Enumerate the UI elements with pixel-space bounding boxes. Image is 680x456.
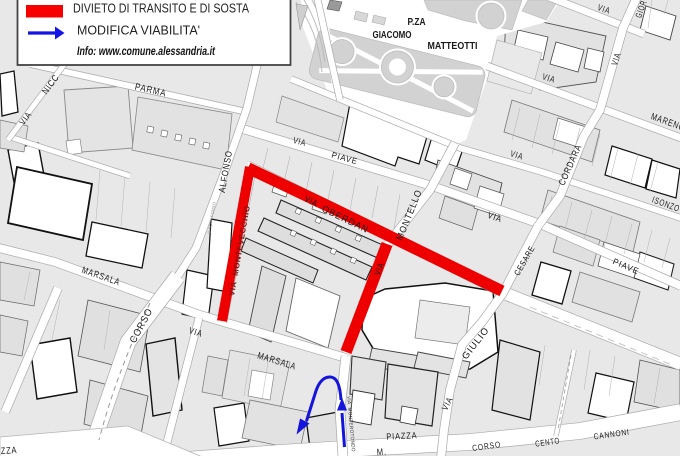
svg-text:P.ZA: P.ZA (408, 17, 426, 28)
svg-text:GIACOMO: GIACOMO (373, 30, 412, 41)
svg-text:MODIFICA VIABILITA': MODIFICA VIABILITA' (77, 22, 200, 37)
svg-text:DIVIETO DI TRANSITO E DI SOSTA: DIVIETO DI TRANSITO E DI SOSTA (73, 1, 249, 16)
svg-text:PIAZZA: PIAZZA (386, 430, 417, 442)
svg-text:MATTEOTTI: MATTEOTTI (428, 41, 478, 52)
svg-text:Info: www.comune.alessandria.i: Info: www.comune.alessandria.it (77, 44, 216, 58)
svg-text:M.: M. (376, 447, 387, 456)
svg-text:PIAZZA: PIAZZA (0, 445, 18, 456)
